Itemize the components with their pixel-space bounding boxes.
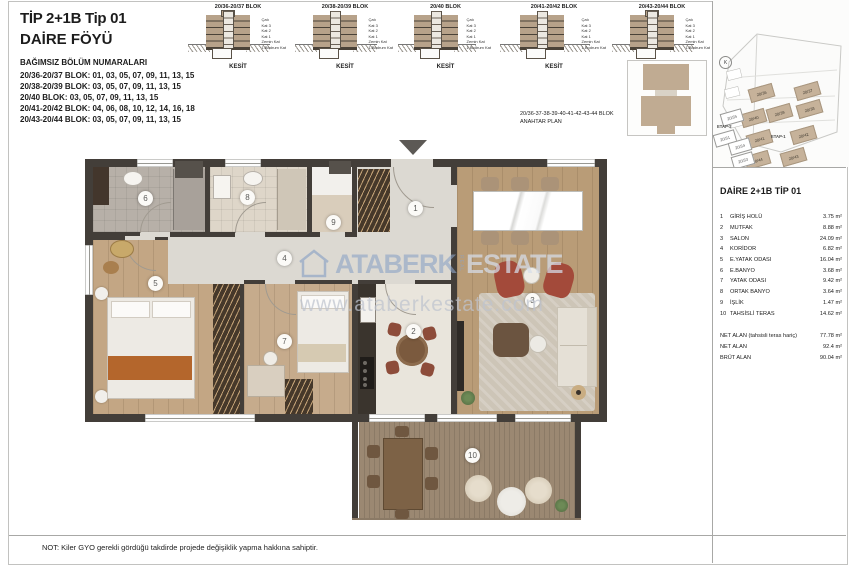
side-table: [523, 267, 540, 284]
room-schedule: 1GİRİŞ HOLÜ3.75 m² 2MUTFAK8.88 m² 3SALON…: [720, 212, 842, 319]
unit-panel-title: DAİRE 2+1B TİP 01: [720, 186, 801, 196]
sink: [213, 175, 231, 199]
kitchen-sink: [360, 297, 376, 323]
room-badge: 3: [525, 293, 540, 308]
window: [225, 159, 261, 167]
bed-master: [107, 297, 195, 399]
room-row: 1GİRİŞ HOLÜ3.75 m²: [720, 212, 842, 223]
room-corridor: [168, 236, 451, 284]
bath-closet: [93, 167, 109, 205]
wall-wardrobe-bedroom2: [240, 284, 244, 414]
pouf: [465, 475, 492, 502]
sofa-backrest: [587, 308, 596, 386]
wall-terrace-left: [352, 422, 358, 520]
coffee-table-small: [529, 335, 547, 353]
terrace-chair: [367, 475, 380, 488]
unit-numbers-line: 20/38-20/39 BLOK: 03, 05, 07, 09, 11, 13…: [20, 82, 181, 91]
room-badge: 1: [408, 201, 423, 216]
summary-row: NET ALAN (tahsisli teras hariç)77.78 m²: [720, 330, 842, 341]
floor-level-labels: Çatı Kat 3 Kat 2 Kat 1 Zemin Kat 1.Bodru…: [467, 17, 491, 50]
terrace-edge: [352, 518, 581, 520]
wall-bath-divider: [205, 159, 210, 236]
room-badge: 9: [326, 215, 341, 230]
pillow: [111, 301, 150, 318]
terrace-door: [515, 414, 571, 422]
unit-numbers-line: 20/41-20/42 BLOK: 04, 06, 08, 10, 12, 14…: [20, 104, 195, 113]
page-subtitle: DAİRE FÖYÜ: [20, 31, 113, 48]
dining-table-marble: [473, 191, 583, 231]
key-plan-label: ANAHTAR PLAN: [520, 118, 632, 126]
desk: [247, 365, 285, 397]
terrace-door: [437, 414, 497, 422]
floor-plan-sheet: TİP 2+1B Tip 01 DAİRE FÖYÜ BAĞIMSIZ BÖLÜ…: [0, 0, 850, 566]
wall-right: [599, 159, 607, 422]
room-row: 5E.YATAK ODASI16.04 m²: [720, 255, 842, 266]
terrace-chair: [367, 445, 380, 458]
bed-throw: [298, 344, 346, 362]
section-elevation: 20/36-20/37 BLOK Çatı Kat 3 Kat 2 Kat 1 …: [188, 4, 288, 76]
elevation-title: 20/41-20/42 BLOK: [500, 4, 608, 10]
dining-chair: [481, 177, 499, 191]
window: [137, 159, 173, 167]
room-row: 8ORTAK BANYO3.64 m²: [720, 287, 842, 298]
floor-level-labels: Çatı Kat 3 Kat 2 Kat 1 Zemin Kat 1.Bodru…: [369, 17, 393, 50]
room-row: 2MUTFAK8.88 m²: [720, 223, 842, 234]
shower-shared: [277, 169, 306, 230]
room-badge: 7: [277, 334, 292, 349]
terrace-door: [369, 414, 425, 422]
wall-bath-utility: [307, 159, 312, 236]
dining-chair: [541, 177, 559, 191]
compass-icon: K: [719, 56, 732, 69]
dining-chair: [511, 177, 529, 191]
toilet: [123, 171, 143, 186]
room-row: 6E.BANYO3.68 m²: [720, 265, 842, 276]
room-badge: 8: [240, 190, 255, 205]
elevation-drawing: Çatı Kat 3 Kat 2 Kat 1 Zemin Kat 1.Bodru…: [295, 11, 395, 61]
room-badge: 2: [406, 324, 421, 339]
utility-door-gap: [320, 232, 345, 237]
terrace-table: [383, 438, 423, 510]
etap1-label: ETAP-1: [771, 134, 786, 139]
sofa: [557, 307, 597, 387]
room-row: 9İŞLİK1.47 m²: [720, 298, 842, 309]
dining-chair: [541, 231, 559, 245]
unit-numbers-heading: BAĞIMSIZ BÖLÜM NUMARALARI: [20, 58, 147, 67]
toilet: [243, 171, 263, 186]
shaft-box: [175, 161, 203, 178]
unit-numbers-line: 20/36-20/37 BLOK: 01, 03, 05, 07, 09, 11…: [20, 71, 194, 80]
room-row: 10TAHSİSLİ TERAS14.62 m²: [720, 308, 842, 319]
elevation-title: 20/43-20/44 BLOK: [612, 4, 712, 10]
room-row: 4KORİDOR6.82 m²: [720, 244, 842, 255]
bed-runner: [108, 356, 192, 380]
wall-bedroom2-corridor: [244, 280, 352, 284]
section-caption: KESİT: [398, 64, 493, 70]
room-badge: 5: [148, 276, 163, 291]
terrace-chair: [425, 477, 438, 490]
window: [547, 159, 595, 167]
area-summary: NET ALAN (tahsisli teras hariç)77.78 m² …: [720, 330, 842, 363]
basket-decor: [103, 261, 119, 274]
elevation-drawing: Çatı Kat 3 Kat 2 Kat 1 Zemin Kat 1.Bodru…: [398, 11, 493, 61]
tv-unit: [457, 321, 464, 391]
elevation-drawing: Çatı Kat 3 Kat 2 Kat 1 Zemin Kat 1.Bodru…: [188, 11, 288, 61]
plant: [461, 391, 475, 405]
unit-numbers-line: 20/43-20/44 BLOK: 03, 05, 07, 09, 11, 13…: [20, 115, 181, 124]
section-caption: KESİT: [188, 64, 288, 70]
hall-living-opening: [451, 185, 457, 227]
apartment-floor-plan: 1 2 3 4 5 6 7 8 9 10: [85, 145, 645, 540]
hall-wardrobe: [358, 169, 390, 232]
bed-second: [297, 291, 349, 373]
basket-decor: [111, 241, 133, 257]
dining-chair: [481, 231, 499, 245]
room-badge: 6: [138, 191, 153, 206]
coffee-table: [493, 323, 529, 357]
terrace-chair: [395, 426, 409, 437]
summary-row: NET ALAN92.4 m²: [720, 341, 842, 352]
page-title: TİP 2+1B Tip 01: [20, 10, 126, 27]
pillow: [301, 295, 345, 309]
etap2-label: ETAP-2: [717, 124, 732, 129]
room-badge: 4: [277, 251, 292, 266]
elevation-title: 20/40 BLOK: [398, 4, 493, 10]
section-elevation: 20/40 BLOK Çatı Kat 3 Kat 2 Kat 1 Zemin …: [398, 4, 493, 76]
dining-chair: [511, 231, 529, 245]
chair: [263, 351, 278, 366]
elevation-drawing: Çatı Kat 3 Kat 2 Kat 1 Zemin Kat 1.Bodru…: [500, 11, 608, 61]
room-row: 3SALON24.09 m²: [720, 233, 842, 244]
section-caption: KESİT: [500, 64, 608, 70]
plant: [555, 499, 568, 512]
floor-level-labels: Çatı Kat 3 Kat 2 Kat 1 Zemin Kat 1.Bodru…: [262, 17, 286, 50]
pillow: [152, 301, 191, 318]
key-plan-blocks: 20/36-37-38-39-40-41-42-43-44 BLOK: [520, 110, 632, 118]
disclaimer-note: NOT: Kiler GYO gerekli gördüğü takdirde …: [42, 543, 318, 552]
key-plan-caption: 20/36-37-38-39-40-41-42-43-44 BLOK ANAHT…: [520, 110, 632, 126]
shower-ensuite: [173, 169, 209, 230]
terrace-chair: [395, 509, 409, 519]
shaft-box: [329, 161, 351, 174]
wall-bedroom2-kitchen: [352, 284, 358, 414]
summary-row: BRÜT ALAN90.04 m²: [720, 352, 842, 363]
cooktop: [360, 357, 374, 389]
floor-level-labels: Çatı Kat 3 Kat 2 Kat 1 Zemin Kat 1.Bodru…: [686, 17, 710, 50]
elevation-title: 20/36-20/37 BLOK: [188, 4, 288, 10]
site-map: K 20/36 20/37 20/40 20/39 20/38 20/41 20…: [713, 0, 849, 167]
section-caption: KESİT: [295, 64, 395, 70]
window: [145, 414, 255, 422]
terrace-chair: [425, 447, 438, 460]
elevation-drawing: Çatı Kat 3 Kat 2 Kat 1 Zemin Kat 1.Bodru…: [612, 11, 712, 61]
wardrobe-small: [285, 379, 313, 414]
wall-terrace-right: [575, 422, 581, 520]
section-elevation: 20/41-20/42 BLOK Çatı Kat 3 Kat 2 Kat 1 …: [500, 4, 608, 76]
floor-level-labels: Çatı Kat 3 Kat 2 Kat 1 Zemin Kat 1.Bodru…: [582, 17, 606, 50]
section-elevation: 20/38-20/39 BLOK Çatı Kat 3 Kat 2 Kat 1 …: [295, 4, 395, 76]
floor-lamp: [571, 385, 586, 400]
entrance-door-gap: [391, 159, 433, 167]
room-badge: 10: [465, 448, 480, 463]
wall-utility-hall: [352, 159, 357, 236]
unit-numbers-line: 20/40 BLOK: 03, 05, 07, 09, 11, 13, 15: [20, 93, 158, 102]
entrance-arrow-icon: [399, 140, 427, 155]
sitemap-divider: [713, 167, 846, 168]
pouf: [525, 477, 552, 504]
window: [85, 245, 93, 295]
elevation-title: 20/38-20/39 BLOK: [295, 4, 395, 10]
bedroom-wardrobe: [213, 284, 240, 414]
chair: [385, 360, 400, 375]
round-rug: [497, 487, 526, 516]
room-row: 7YATAK ODASI9.42 m²: [720, 276, 842, 287]
